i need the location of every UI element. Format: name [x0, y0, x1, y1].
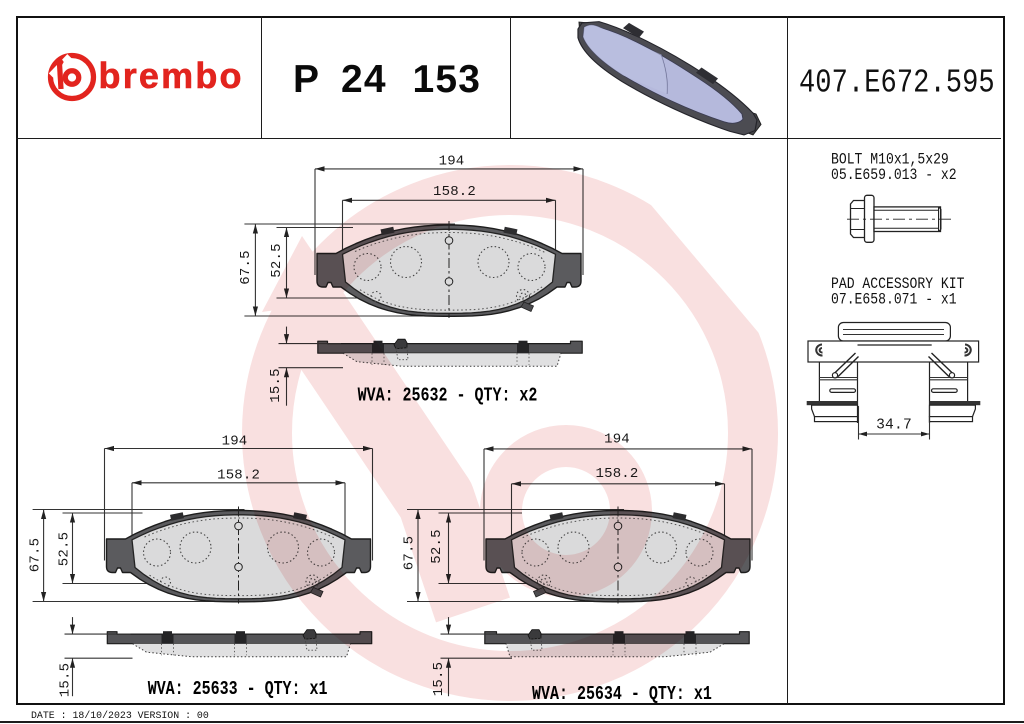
svg-text:67.5: 67.5: [401, 536, 417, 570]
svg-text:158.2: 158.2: [433, 184, 476, 200]
svg-text:WVA: 25633 - QTY: x1: WVA: 25633 - QTY: x1: [148, 680, 328, 701]
svg-text:15.5: 15.5: [431, 662, 447, 696]
svg-text:15.5: 15.5: [58, 663, 74, 697]
svg-text:67.5: 67.5: [238, 250, 254, 284]
svg-text:158.2: 158.2: [595, 466, 638, 482]
svg-text:34.7: 34.7: [876, 417, 912, 433]
svg-text:67.5: 67.5: [28, 538, 44, 572]
svg-text:07.E658.071 - x1: 07.E658.071 - x1: [831, 292, 957, 309]
svg-text:15.5: 15.5: [268, 368, 284, 402]
svg-text:194: 194: [604, 432, 630, 448]
svg-text:194: 194: [439, 154, 465, 170]
svg-text:BOLT M10x1,5x29: BOLT M10x1,5x29: [831, 151, 949, 168]
svg-text:52.5: 52.5: [429, 529, 445, 563]
svg-text:PAD ACCESSORY KIT: PAD ACCESSORY KIT: [831, 276, 965, 293]
svg-text:158.2: 158.2: [217, 468, 260, 484]
svg-text:194: 194: [222, 433, 248, 449]
svg-text:WVA: 25634 - QTY: x1: WVA: 25634 - QTY: x1: [532, 684, 712, 704]
svg-text:WVA: 25632 - QTY: x2: WVA: 25632 - QTY: x2: [358, 386, 538, 407]
svg-text:05.E659.013 - x2: 05.E659.013 - x2: [831, 167, 957, 184]
svg-text:52.5: 52.5: [57, 532, 73, 566]
svg-text:52.5: 52.5: [269, 243, 285, 277]
